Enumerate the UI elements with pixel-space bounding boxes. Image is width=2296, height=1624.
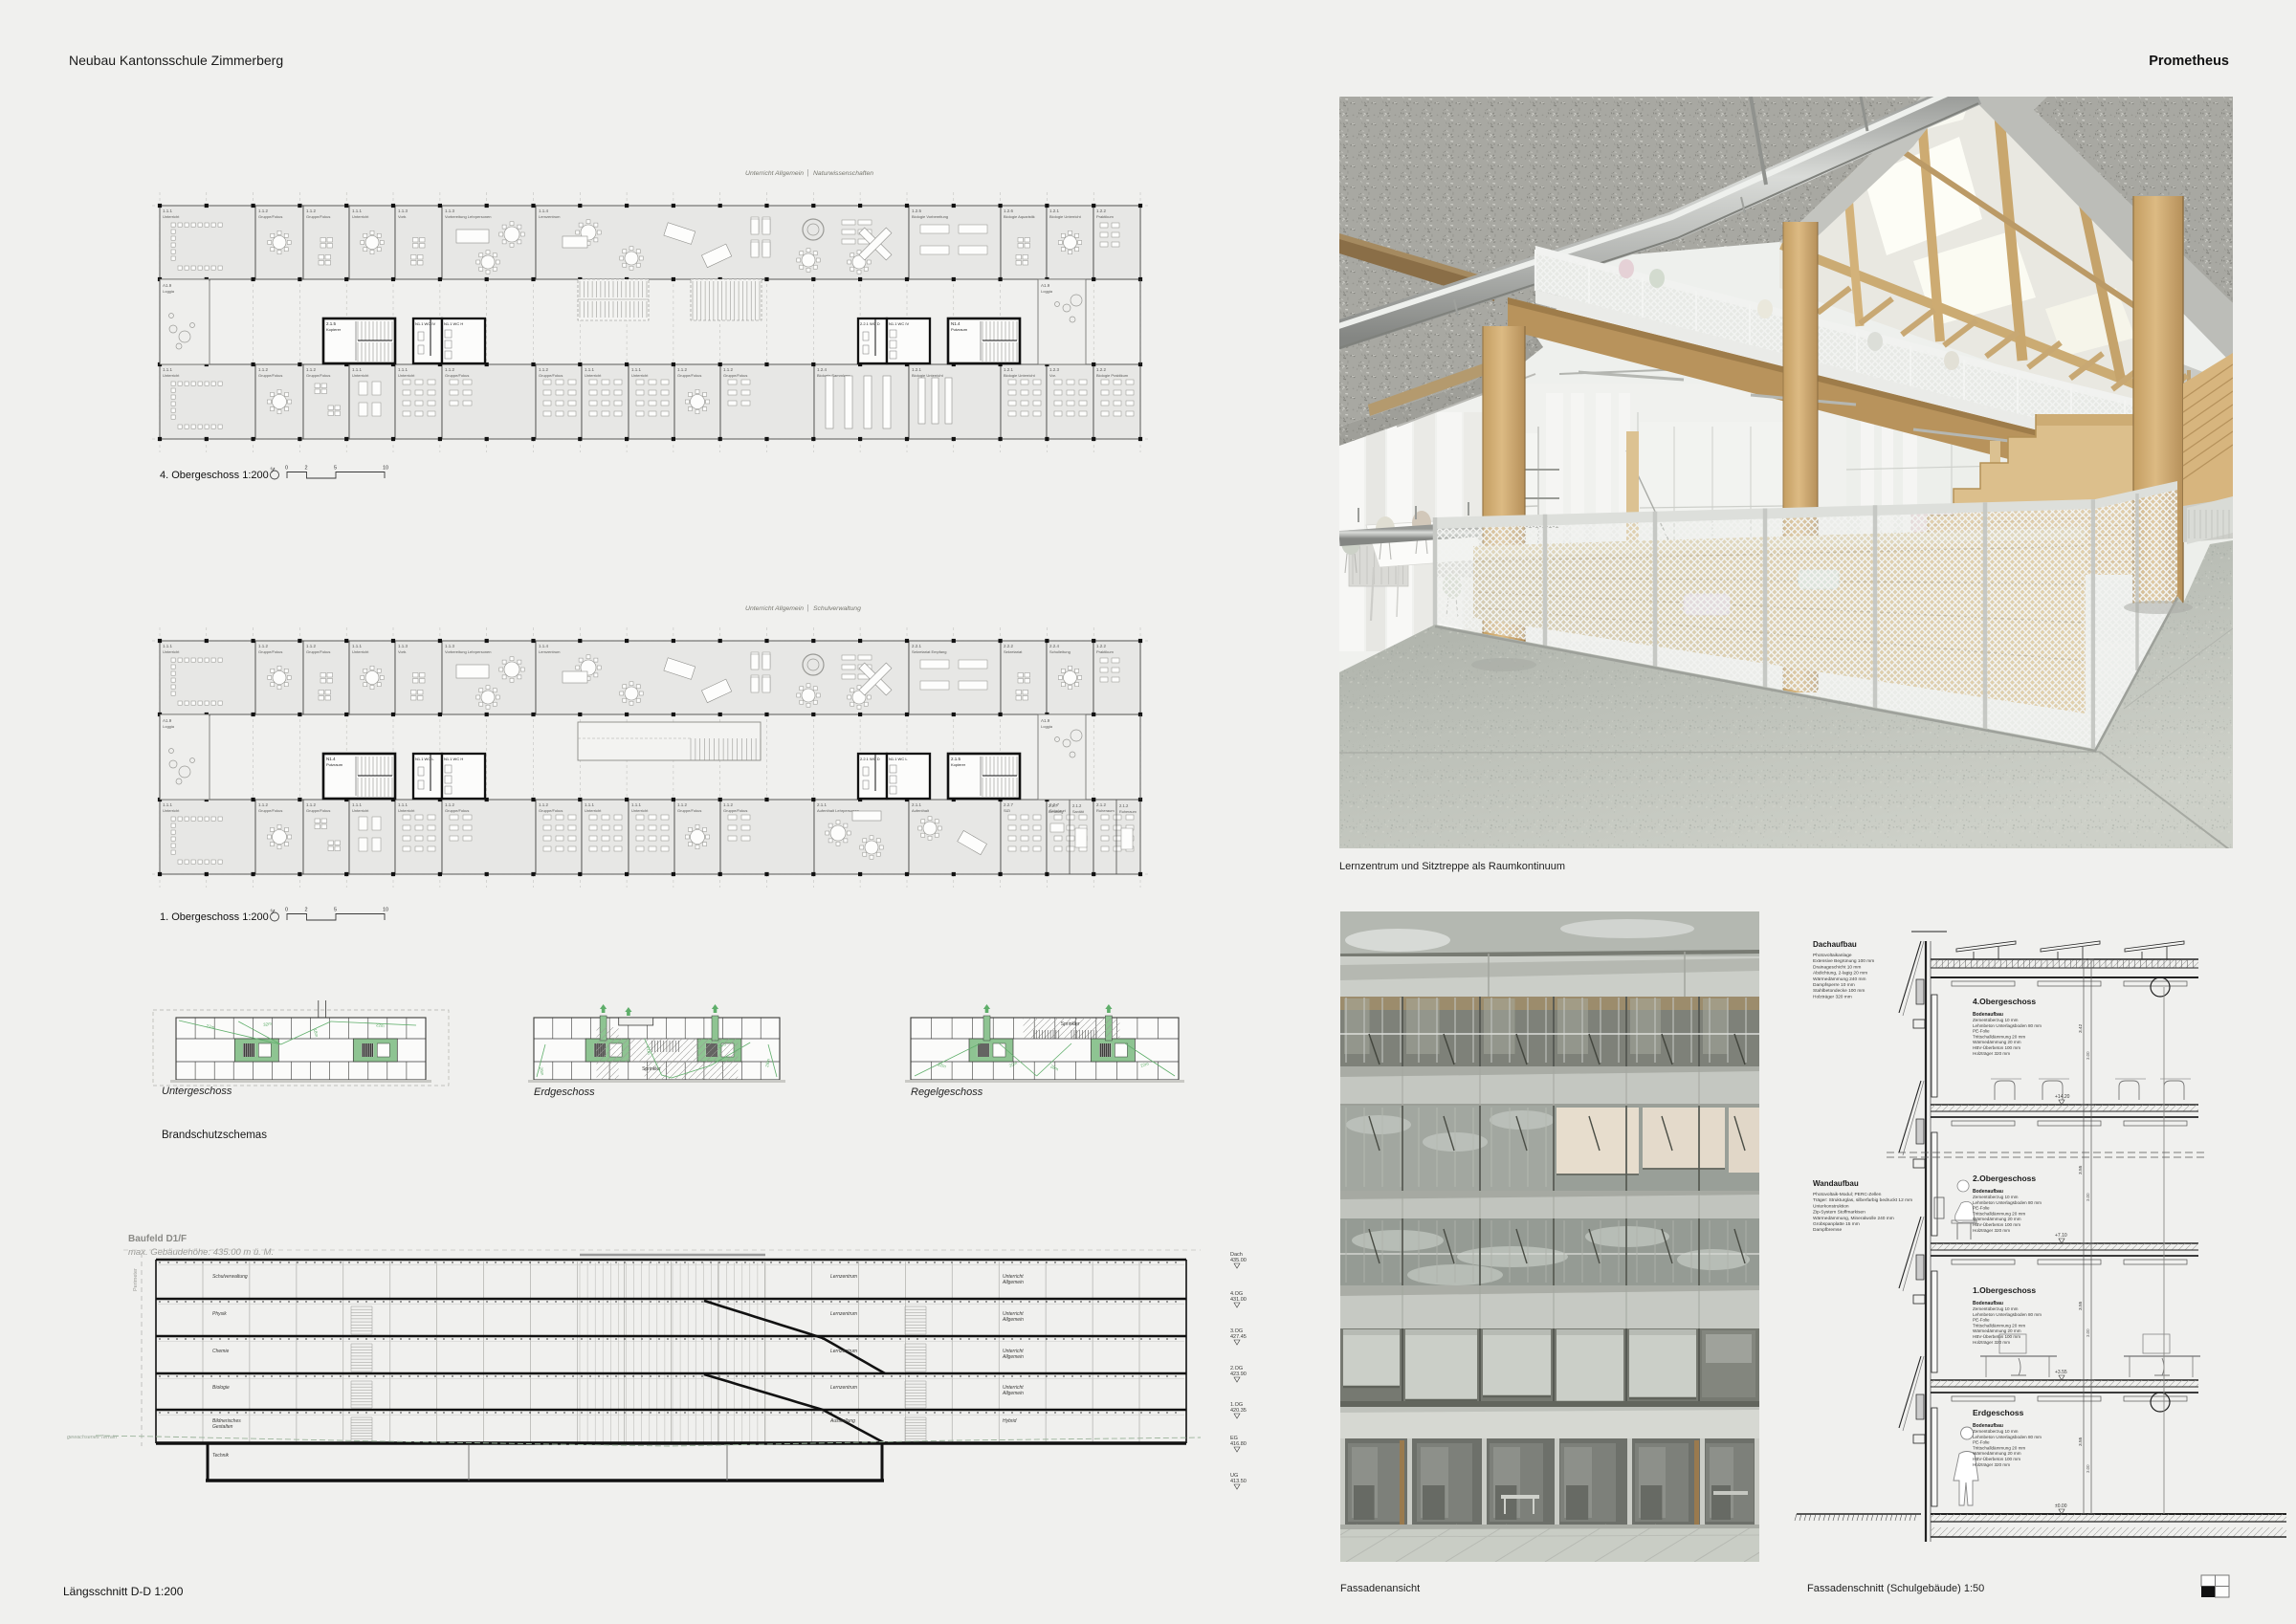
svg-text:413.50: 413.50 <box>1230 1479 1247 1484</box>
svg-text:423.90: 423.90 <box>1230 1372 1247 1377</box>
svg-text:1.2.6: 1.2.6 <box>1004 208 1014 213</box>
svg-text:2.1.2: 2.1.2 <box>1119 803 1129 808</box>
svg-text:1.1.3: 1.1.3 <box>398 644 408 648</box>
svg-text:2.2.7: 2.2.7 <box>1049 803 1058 808</box>
svg-text:Lehmbeton Unterlagsboden: Lehmbeton Unterlagsboden 80 mm <box>1973 1200 2042 1205</box>
svg-text:N1.1 WC L: N1.1 WC L <box>415 757 434 761</box>
svg-text:N1.1 WC L: N1.1 WC L <box>889 757 908 761</box>
svg-text:1.1.2: 1.1.2 <box>306 644 317 648</box>
svg-text:2.1.2: 2.1.2 <box>1072 803 1082 808</box>
svg-text:2.2.7: 2.2.7 <box>1004 802 1014 807</box>
svg-text:Allgemein: Allgemein <box>1002 1391 1024 1396</box>
svg-text:Untergeschoss: Untergeschoss <box>162 1086 232 1097</box>
svg-text:Prometheus: Prometheus <box>2149 54 2229 69</box>
svg-text:1.1.1: 1.1.1 <box>352 802 363 807</box>
svg-text:5: 5 <box>334 466 337 472</box>
svg-text:1.1.2: 1.1.2 <box>306 208 317 213</box>
svg-text:427.45: 427.45 <box>1230 1334 1247 1340</box>
svg-text:Sanität: Sanität <box>1072 810 1085 814</box>
svg-text:HBV-Überbeton: HBV-Überbeton 100 mm <box>1973 1221 2020 1227</box>
svg-text:N1.1 WC H: N1.1 WC H <box>444 757 463 761</box>
svg-text:435.00: 435.00 <box>1230 1258 1247 1263</box>
svg-text:3.00: 3.00 <box>2086 1464 2090 1473</box>
svg-text:Unterricht: Unterricht <box>352 373 369 378</box>
svg-text:A1.9: A1.9 <box>1041 283 1050 288</box>
svg-text:Erdgeschoss: Erdgeschoss <box>534 1086 595 1098</box>
svg-text:max. Gebäudehöhe: 435.00 m ü.: max. Gebäudehöhe: 435.00 m ü. M. <box>128 1247 274 1258</box>
svg-text:Biologie Praktikum: Biologie Praktikum <box>1096 373 1129 378</box>
svg-text:Lehmbeton Unterlagsboden: Lehmbeton Unterlagsboden 80 mm <box>1973 1312 2042 1317</box>
svg-text:Regelgeschoss: Regelgeschoss <box>911 1086 983 1098</box>
svg-text:Schulverwaltung: Schulverwaltung <box>813 605 861 612</box>
svg-text:3.00: 3.00 <box>2086 1193 2090 1201</box>
svg-text:2.2.1: 2.2.1 <box>912 644 922 648</box>
svg-text:4. Obergeschoss 1:200: 4. Obergeschoss 1:200 <box>160 470 269 481</box>
svg-text:Trittschalldämmung: Trittschalldämmung 20 mm <box>1973 1211 2025 1216</box>
svg-text:1.1.1: 1.1.1 <box>163 644 173 648</box>
svg-text:3.55: 3.55 <box>2078 1301 2084 1310</box>
svg-text:Photovoltaikanlage: Photovoltaikanlage <box>1813 953 1852 958</box>
svg-text:A1.9: A1.9 <box>163 283 172 288</box>
svg-text:2.2.2: 2.2.2 <box>1004 644 1014 648</box>
svg-text:Drainageschicht: Drainageschicht 10 mm <box>1813 964 1861 970</box>
svg-text:1.1.3: 1.1.3 <box>445 644 455 648</box>
svg-text:Vor.: Vor. <box>1049 373 1056 378</box>
svg-text:Zementüberzug: Zementüberzug 10 mm <box>1973 1306 2019 1311</box>
svg-text:Gruppe/Fokus: Gruppe/Fokus <box>445 808 469 813</box>
svg-text:1.1.1: 1.1.1 <box>163 802 173 807</box>
svg-text:Lernzentrum und Sitztreppe als: Lernzentrum und Sitztreppe als Raumkonti… <box>1339 861 1565 872</box>
svg-text:Wandaufbau: Wandaufbau <box>1813 1179 1859 1188</box>
svg-text:1.1.2: 1.1.2 <box>445 802 455 807</box>
svg-text:10: 10 <box>383 466 388 472</box>
svg-text:1.2.2: 1.2.2 <box>1096 367 1107 372</box>
svg-text:1.2.3: 1.2.3 <box>1049 367 1060 372</box>
svg-text:2.2.1 WC D: 2.2.1 WC D <box>860 757 880 761</box>
svg-text:N1.4: N1.4 <box>326 757 336 761</box>
svg-text:Allgemein: Allgemein <box>1002 1317 1024 1323</box>
svg-text:N1.1 WC IV: N1.1 WC IV <box>415 321 435 326</box>
svg-text:Loggia: Loggia <box>163 289 175 294</box>
svg-text:Zementüberzug: Zementüberzug 10 mm <box>1973 1429 2019 1434</box>
svg-text:1.1.2: 1.1.2 <box>677 802 688 807</box>
svg-text:Beratung: Beratung <box>1049 810 1063 814</box>
svg-text:Naturwissenschaften: Naturwissenschaften <box>813 170 873 177</box>
svg-text:Fassadenansicht: Fassadenansicht <box>1340 1583 1420 1594</box>
svg-text:2.1.1: 2.1.1 <box>912 802 922 807</box>
svg-text:1.1.2: 1.1.2 <box>539 802 549 807</box>
svg-text:+7.10: +7.10 <box>2055 1233 2067 1239</box>
svg-text:Lehmbeton Unterlagsboden: Lehmbeton Unterlagsboden 80 mm <box>1973 1023 2042 1028</box>
svg-text:Unterricht: Unterricht <box>352 808 369 813</box>
svg-text:Unterricht: Unterricht <box>163 214 180 219</box>
svg-text:Lehmbeton Unterlagsboden: Lehmbeton Unterlagsboden 80 mm <box>1973 1435 2042 1439</box>
svg-text:0: 0 <box>285 466 288 472</box>
svg-text:Vorbereitung Lehrpersonen: Vorbereitung Lehrpersonen <box>445 649 491 654</box>
svg-text:Trittschalldämmung: Trittschalldämmung 20 mm <box>1973 1034 2025 1039</box>
svg-text:0: 0 <box>285 908 288 913</box>
svg-text:Wärmedämmung 2: Wärmedämmung 240 mm <box>1813 977 1865 982</box>
svg-text:Erdgeschoss: Erdgeschoss <box>1973 1408 2024 1417</box>
svg-text:Träger: Strukturglas, silberfa: Träger: Strukturglas, silberfarbig bedru… <box>1813 1197 1912 1203</box>
svg-text:Aufenthalt: Aufenthalt <box>912 808 930 813</box>
svg-text:Putzraum: Putzraum <box>326 762 343 767</box>
svg-text:Biologie Vorbereitung: Biologie Vorbereitung <box>912 214 948 219</box>
svg-text:Dampfbremse: Dampfbremse <box>1813 1227 1842 1233</box>
svg-text:Fassadenschnitt (Schulgebäude): Fassadenschnitt (Schulgebäude) 1:50 <box>1807 1583 1984 1594</box>
svg-text:2.Obergeschoss: 2.Obergeschoss <box>1973 1174 2036 1183</box>
svg-text:Loggia: Loggia <box>1041 724 1053 729</box>
svg-text:Holzträger: Holzträger 320 mm <box>1973 1340 2010 1345</box>
svg-text:1.1.2: 1.1.2 <box>723 367 734 372</box>
svg-text:1.1.1: 1.1.1 <box>352 367 363 372</box>
svg-text:Ausstellung: Ausstellung <box>829 1418 855 1424</box>
svg-text:Vorbereitung Lehrpersonen: Vorbereitung Lehrpersonen <box>445 214 491 219</box>
svg-text:Unterricht: Unterricht <box>398 373 415 378</box>
svg-text:Wärmedämmung, Mineralwolle: Wärmedämmung, Mineralwolle 240 mm <box>1813 1216 1894 1221</box>
svg-text:Gruppe/Fokus: Gruppe/Fokus <box>306 808 330 813</box>
svg-text:1.2.2: 1.2.2 <box>1096 208 1107 213</box>
svg-text:1.1.1: 1.1.1 <box>398 802 408 807</box>
svg-text:Extensive Begrünung 1: Extensive Begrünung 100 mm <box>1813 958 1874 964</box>
svg-text:Wärmedämmung: Wärmedämmung 20 mm <box>1973 1217 2021 1221</box>
svg-text:gewachsenes Terrain: gewachsenes Terrain <box>67 1435 117 1440</box>
svg-text:Schulverwaltung: Schulverwaltung <box>212 1274 248 1280</box>
svg-text:1.1.1: 1.1.1 <box>163 208 173 213</box>
svg-text:HBV-Überbeton: HBV-Überbeton 100 mm <box>1973 1044 2020 1050</box>
svg-text:Trittschalldämmung: Trittschalldämmung 20 mm <box>1973 1323 2025 1328</box>
svg-text:Gruppe/Fokus: Gruppe/Fokus <box>677 373 701 378</box>
svg-text:PE-Folie: PE-Folie <box>1973 1206 1990 1211</box>
svg-text:Gruppe/Fokus: Gruppe/Fokus <box>258 808 282 813</box>
svg-text:Unterricht: Unterricht <box>163 808 180 813</box>
svg-text:N1.1 WC H: N1.1 WC H <box>444 321 463 326</box>
svg-text:1.2.5: 1.2.5 <box>912 208 922 213</box>
svg-text:SiZi: SiZi <box>1004 808 1010 813</box>
svg-text:Lernzentrum: Lernzentrum <box>830 1385 857 1391</box>
svg-text:±0.00: ±0.00 <box>2055 1503 2067 1509</box>
svg-text:1. Obergeschoss 1:200: 1. Obergeschoss 1:200 <box>160 911 269 923</box>
svg-text:Holzträger: Holzträger 320 mm <box>1813 994 1852 999</box>
svg-text:Längsschnitt D-D 1:200: Längsschnitt D-D 1:200 <box>63 1585 184 1598</box>
svg-text:1.1.1: 1.1.1 <box>631 367 642 372</box>
svg-text:Dampfsperre: Dampfsperre 10 mm <box>1813 982 1855 988</box>
svg-text:1.1.2: 1.1.2 <box>258 367 269 372</box>
svg-text:Gruppe/Fokus: Gruppe/Fokus <box>306 214 330 219</box>
svg-text:Zip-System Stoffmarkisen: Zip-System Stoffmarkisen <box>1813 1210 1865 1216</box>
svg-text:Unterricht: Unterricht <box>631 373 649 378</box>
svg-text:Trittschalldämmung: Trittschalldämmung 20 mm <box>1973 1445 2025 1450</box>
svg-text:Biologie Unterricht: Biologie Unterricht <box>1004 373 1036 378</box>
svg-text:1.1.2: 1.1.2 <box>539 367 549 372</box>
svg-text:Lernzentrum: Lernzentrum <box>830 1274 857 1280</box>
svg-text:1.Obergeschoss: 1.Obergeschoss <box>1973 1285 2036 1295</box>
svg-text:3.55: 3.55 <box>2078 1437 2084 1446</box>
svg-text:Biologie: Biologie <box>212 1385 230 1391</box>
svg-text:3.00: 3.00 <box>2086 1051 2090 1060</box>
svg-text:Chemie: Chemie <box>212 1349 229 1354</box>
svg-text:1.1.1: 1.1.1 <box>585 367 595 372</box>
svg-text:PE-Folie: PE-Folie <box>1973 1318 1990 1323</box>
svg-text:+3.55: +3.55 <box>2055 1370 2067 1375</box>
svg-text:Lernzentrum: Lernzentrum <box>830 1311 857 1317</box>
svg-text:Physik: Physik <box>212 1311 227 1317</box>
svg-text:Ruheraum: Ruheraum <box>1096 808 1115 813</box>
svg-text:3.00: 3.00 <box>2086 1328 2090 1337</box>
svg-text:Gruppe/Fokus: Gruppe/Fokus <box>723 373 747 378</box>
svg-text:1.1.2: 1.1.2 <box>677 367 688 372</box>
svg-text:Unterricht: Unterricht <box>585 373 602 378</box>
svg-text:Unterricht: Unterricht <box>352 649 369 654</box>
svg-text:Unterkonstruktion: Unterkonstruktion <box>1813 1203 1849 1209</box>
svg-text:Brandschutzschemas: Brandschutzschemas <box>162 1130 267 1141</box>
svg-text:21m: 21m <box>646 1046 651 1055</box>
svg-text:Unterricht: Unterricht <box>352 214 369 219</box>
svg-text:Gruppe/Fokus: Gruppe/Fokus <box>306 649 330 654</box>
svg-text:3.42: 3.42 <box>2078 1023 2084 1033</box>
svg-text:Wärmedämmung: Wärmedämmung 20 mm <box>1973 1328 2021 1333</box>
svg-text:1.2.1: 1.2.1 <box>1049 208 1060 213</box>
svg-text:1.1.1: 1.1.1 <box>352 208 363 213</box>
svg-text:1.1.1: 1.1.1 <box>631 802 642 807</box>
svg-text:Dachaufbau: Dachaufbau <box>1813 940 1857 949</box>
svg-text:HBV-Überbeton: HBV-Überbeton 100 mm <box>1973 1456 2020 1461</box>
svg-text:Praktikum: Praktikum <box>1096 214 1114 219</box>
svg-text:Vorb.: Vorb. <box>398 649 407 654</box>
svg-text:Unterricht: Unterricht <box>163 373 180 378</box>
svg-text:Unterricht: Unterricht <box>398 808 415 813</box>
svg-text:A1.9: A1.9 <box>163 718 172 723</box>
svg-text:Wärmedämmung: Wärmedämmung 20 mm <box>1973 1040 2021 1044</box>
svg-text:Kopierer: Kopierer <box>326 327 342 332</box>
svg-text:Loggia: Loggia <box>163 724 175 729</box>
svg-text:Gruppe/Fokus: Gruppe/Fokus <box>258 214 282 219</box>
svg-text:Unterricht Allgemein: Unterricht Allgemein <box>745 605 804 612</box>
svg-text:Gruppe/Fokus: Gruppe/Fokus <box>445 373 469 378</box>
svg-text:1.1.2: 1.1.2 <box>723 802 734 807</box>
svg-text:1.1.2: 1.1.2 <box>445 367 455 372</box>
svg-text:3.55: 3.55 <box>2078 1165 2084 1174</box>
svg-text:1.1.1: 1.1.1 <box>398 367 408 372</box>
svg-text:Biologie Aquaristik: Biologie Aquaristik <box>1004 214 1035 219</box>
svg-text:Kopierer: Kopierer <box>951 762 966 767</box>
svg-text:2.1.5: 2.1.5 <box>951 757 961 761</box>
svg-text:1.1.4: 1.1.4 <box>539 208 549 213</box>
svg-text:431.00: 431.00 <box>1230 1297 1247 1303</box>
svg-text:Allgemein: Allgemein <box>1002 1280 1024 1285</box>
svg-text:Holzträger: Holzträger 320 mm <box>1973 1228 2010 1233</box>
svg-text:2: 2 <box>305 466 308 472</box>
svg-text:2.2.1 WC D: 2.2.1 WC D <box>860 321 880 326</box>
svg-text:5: 5 <box>334 908 337 913</box>
svg-text:1.2.1: 1.2.1 <box>1004 367 1014 372</box>
svg-text:Schulleitung: Schulleitung <box>1049 649 1071 654</box>
svg-text:1.1.2: 1.1.2 <box>306 367 317 372</box>
svg-text:Gruppe/Fokus: Gruppe/Fokus <box>539 808 563 813</box>
svg-text:Lernzentrum: Lernzentrum <box>539 649 561 654</box>
svg-text:Hybrid: Hybrid <box>1003 1418 1017 1424</box>
svg-text:Gruppe/Fokus: Gruppe/Fokus <box>677 808 701 813</box>
svg-text:Biologie Unterricht: Biologie Unterricht <box>912 373 944 378</box>
svg-text:Vorb.: Vorb. <box>398 214 407 219</box>
svg-text:Sekretariat: Sekretariat <box>1004 649 1023 654</box>
svg-text:1.2.2: 1.2.2 <box>1096 644 1107 648</box>
svg-text:1.2.1: 1.2.1 <box>912 367 922 372</box>
svg-text:420.35: 420.35 <box>1230 1408 1247 1414</box>
svg-text:A1.9: A1.9 <box>1041 718 1050 723</box>
svg-text:Ruheraum: Ruheraum <box>1119 810 1137 814</box>
svg-text:Sprinkler: Sprinkler <box>1061 1021 1080 1027</box>
svg-text:Gruppe/Fokus: Gruppe/Fokus <box>258 373 282 378</box>
svg-text:Zementüberzug: Zementüberzug 10 mm <box>1973 1195 2019 1199</box>
svg-text:1.1.2: 1.1.2 <box>258 208 269 213</box>
svg-text:Neubau Kantonsschule Zimmerber: Neubau Kantonsschule Zimmerberg <box>69 53 283 68</box>
svg-text:10: 10 <box>383 908 388 913</box>
svg-text:Gruppe/Fokus: Gruppe/Fokus <box>258 649 282 654</box>
svg-text:Unterricht: Unterricht <box>585 808 602 813</box>
svg-text:2.1.2: 2.1.2 <box>1096 802 1107 807</box>
svg-text:Lernzentrum: Lernzentrum <box>539 214 561 219</box>
svg-text:Allgemein: Allgemein <box>1002 1354 1024 1360</box>
svg-text:Wärmedämmung: Wärmedämmung 20 mm <box>1973 1451 2021 1456</box>
svg-text:Sekretariat Empfang: Sekretariat Empfang <box>912 649 946 654</box>
svg-text:2.2.4: 2.2.4 <box>1049 644 1060 648</box>
svg-text:Putzraum: Putzraum <box>951 327 968 332</box>
svg-text:Gruppe/Fokus: Gruppe/Fokus <box>539 373 563 378</box>
svg-text:Unterricht Allgemein: Unterricht Allgemein <box>745 170 804 177</box>
svg-text:2.1.5: 2.1.5 <box>326 321 337 326</box>
svg-text:416.80: 416.80 <box>1230 1441 1247 1447</box>
svg-text:Praktikum: Praktikum <box>1096 649 1114 654</box>
svg-text:Baufeld D1/F: Baufeld D1/F <box>128 1234 187 1244</box>
svg-text:1.1.3: 1.1.3 <box>445 208 455 213</box>
svg-text:N1.4: N1.4 <box>951 321 960 326</box>
svg-text:Biologie Unterricht: Biologie Unterricht <box>1049 214 1082 219</box>
svg-text:Abdichtung, 2-lagig: Abdichtung, 2-lagig 20 mm <box>1813 971 1867 977</box>
svg-text:Photovoltaik-Modul; PERC-Zelle: Photovoltaik-Modul; PERC-Zellen <box>1813 1192 1882 1197</box>
svg-text:Unterricht: Unterricht <box>631 808 649 813</box>
svg-text:Gruppe/Fokus: Gruppe/Fokus <box>306 373 330 378</box>
svg-text:Holzträger: Holzträger 320 mm <box>1973 1462 2010 1467</box>
svg-text:1.1.2: 1.1.2 <box>258 644 269 648</box>
svg-text:1.1.1: 1.1.1 <box>163 367 173 372</box>
svg-text:HBV-Überbeton: HBV-Überbeton 100 mm <box>1973 1333 2020 1339</box>
svg-text:4.Obergeschoss: 4.Obergeschoss <box>1973 997 2036 1006</box>
svg-text:Unterricht: Unterricht <box>163 649 180 654</box>
svg-text:1.1.4: 1.1.4 <box>539 644 549 648</box>
svg-text:1.1.1: 1.1.1 <box>585 802 595 807</box>
svg-text:1.1.2: 1.1.2 <box>258 802 269 807</box>
svg-text:Gestalten: Gestalten <box>212 1424 233 1430</box>
svg-text:2: 2 <box>305 908 308 913</box>
svg-text:N1.1 WC IV: N1.1 WC IV <box>889 321 909 326</box>
svg-text:Stahlbetondecke: Stahlbetondecke 100 mm <box>1813 988 1865 994</box>
svg-text:Holzträger: Holzträger 320 mm <box>1973 1051 2010 1056</box>
svg-text:1.1.1: 1.1.1 <box>352 644 363 648</box>
svg-text:1.2.4: 1.2.4 <box>817 367 828 372</box>
svg-text:Grobspanplatte: Grobspanplatte 15 mm <box>1813 1221 1860 1227</box>
svg-text:+14.20: +14.20 <box>2055 1094 2070 1100</box>
svg-text:Perimeter: Perimeter <box>133 1268 139 1291</box>
svg-text:2.1.1: 2.1.1 <box>817 802 828 807</box>
svg-text:Gruppe/Fokus: Gruppe/Fokus <box>723 808 747 813</box>
svg-text:Loggia: Loggia <box>1041 289 1053 294</box>
svg-text:Zementüberzug: Zementüberzug 10 mm <box>1973 1018 2019 1022</box>
svg-text:PE-Folie: PE-Folie <box>1973 1440 1990 1445</box>
svg-text:1.1.3: 1.1.3 <box>398 208 408 213</box>
svg-text:Technik: Technik <box>212 1453 230 1459</box>
svg-text:Lernzentrum: Lernzentrum <box>830 1349 857 1354</box>
svg-text:PE-Folie: PE-Folie <box>1973 1029 1990 1034</box>
svg-text:1.1.2: 1.1.2 <box>306 802 317 807</box>
